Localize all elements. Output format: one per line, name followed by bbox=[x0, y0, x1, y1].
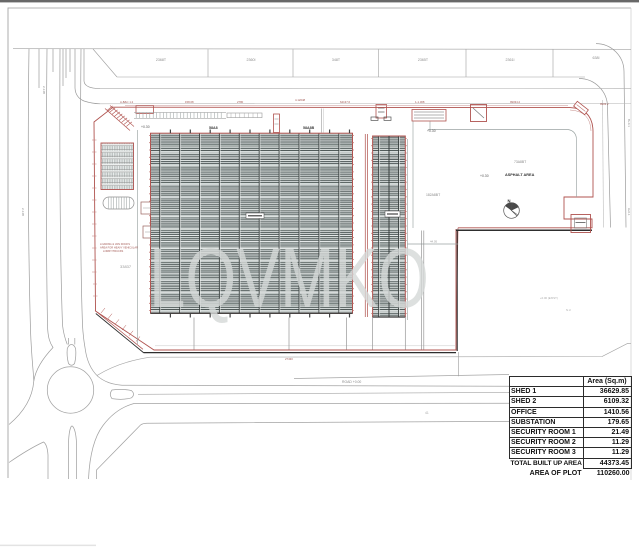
svg-text:B+0.1: B+0.1 bbox=[627, 119, 631, 127]
svg-text:+0.30: +0.30 bbox=[427, 129, 436, 133]
svg-text:2365T: 2365T bbox=[418, 58, 429, 62]
svg-text:41: 41 bbox=[425, 411, 429, 415]
svg-text:2360I: 2360I bbox=[247, 58, 256, 62]
svg-text:638I: 638I bbox=[593, 56, 600, 60]
svg-text:+0.30: +0.30 bbox=[141, 125, 150, 129]
svg-text:4.12048: 4.12048 bbox=[295, 98, 306, 102]
svg-text:N.U: N.U bbox=[566, 308, 571, 312]
svg-text:2361I: 2361I bbox=[506, 58, 515, 62]
svg-text:58A8: 58A8 bbox=[209, 126, 218, 130]
svg-text:58A8B: 58A8B bbox=[303, 126, 315, 130]
svg-text:LOADING & VAN DOCKS: LOADING & VAN DOCKS bbox=[100, 242, 130, 246]
svg-text:ASPHALT AREA: ASPHALT AREA bbox=[505, 173, 535, 177]
svg-text:LORRY/TRUCKS: LORRY/TRUCKS bbox=[103, 249, 124, 253]
svg-text:27430: 27430 bbox=[285, 357, 293, 361]
svg-text:ROAD +0.00: ROAD +0.00 bbox=[342, 380, 361, 384]
svg-text:AREA FOR HEAVY VEHICULAR: AREA FOR HEAVY VEHICULAR bbox=[100, 246, 138, 250]
svg-text:2780: 2780 bbox=[237, 100, 244, 104]
svg-text:LQVMKO: LQVMKO bbox=[149, 231, 429, 325]
svg-text:1-1.308: 1-1.308 bbox=[415, 100, 425, 104]
svg-text:A-B&C 1.2: A-B&C 1.2 bbox=[120, 100, 134, 104]
svg-text:2368T: 2368T bbox=[156, 58, 167, 62]
svg-text:+0.30: +0.30 bbox=[480, 174, 489, 178]
svg-text:9+0.1: 9+0.1 bbox=[627, 208, 631, 216]
svg-text:N: N bbox=[508, 199, 511, 204]
svg-text:2-14B: 2-14B bbox=[21, 208, 25, 216]
svg-text:2-14B: 2-14B bbox=[42, 86, 46, 94]
svg-text:348T: 348T bbox=[332, 58, 341, 62]
svg-text:9903.2: 9903.2 bbox=[600, 102, 609, 106]
svg-text:73A8BT: 73A8BT bbox=[514, 160, 526, 164]
svg-text:+0.00 (EXIST): +0.00 (EXIST) bbox=[540, 296, 558, 300]
svg-text:182A8BT: 182A8BT bbox=[426, 193, 440, 197]
svg-text:33837: 33837 bbox=[120, 264, 132, 269]
svg-text:44.05: 44.05 bbox=[430, 240, 437, 244]
svg-text:99034.2: 99034.2 bbox=[510, 100, 521, 104]
svg-text:158.08: 158.08 bbox=[185, 100, 194, 104]
svg-text:64137.6: 64137.6 bbox=[340, 100, 351, 104]
